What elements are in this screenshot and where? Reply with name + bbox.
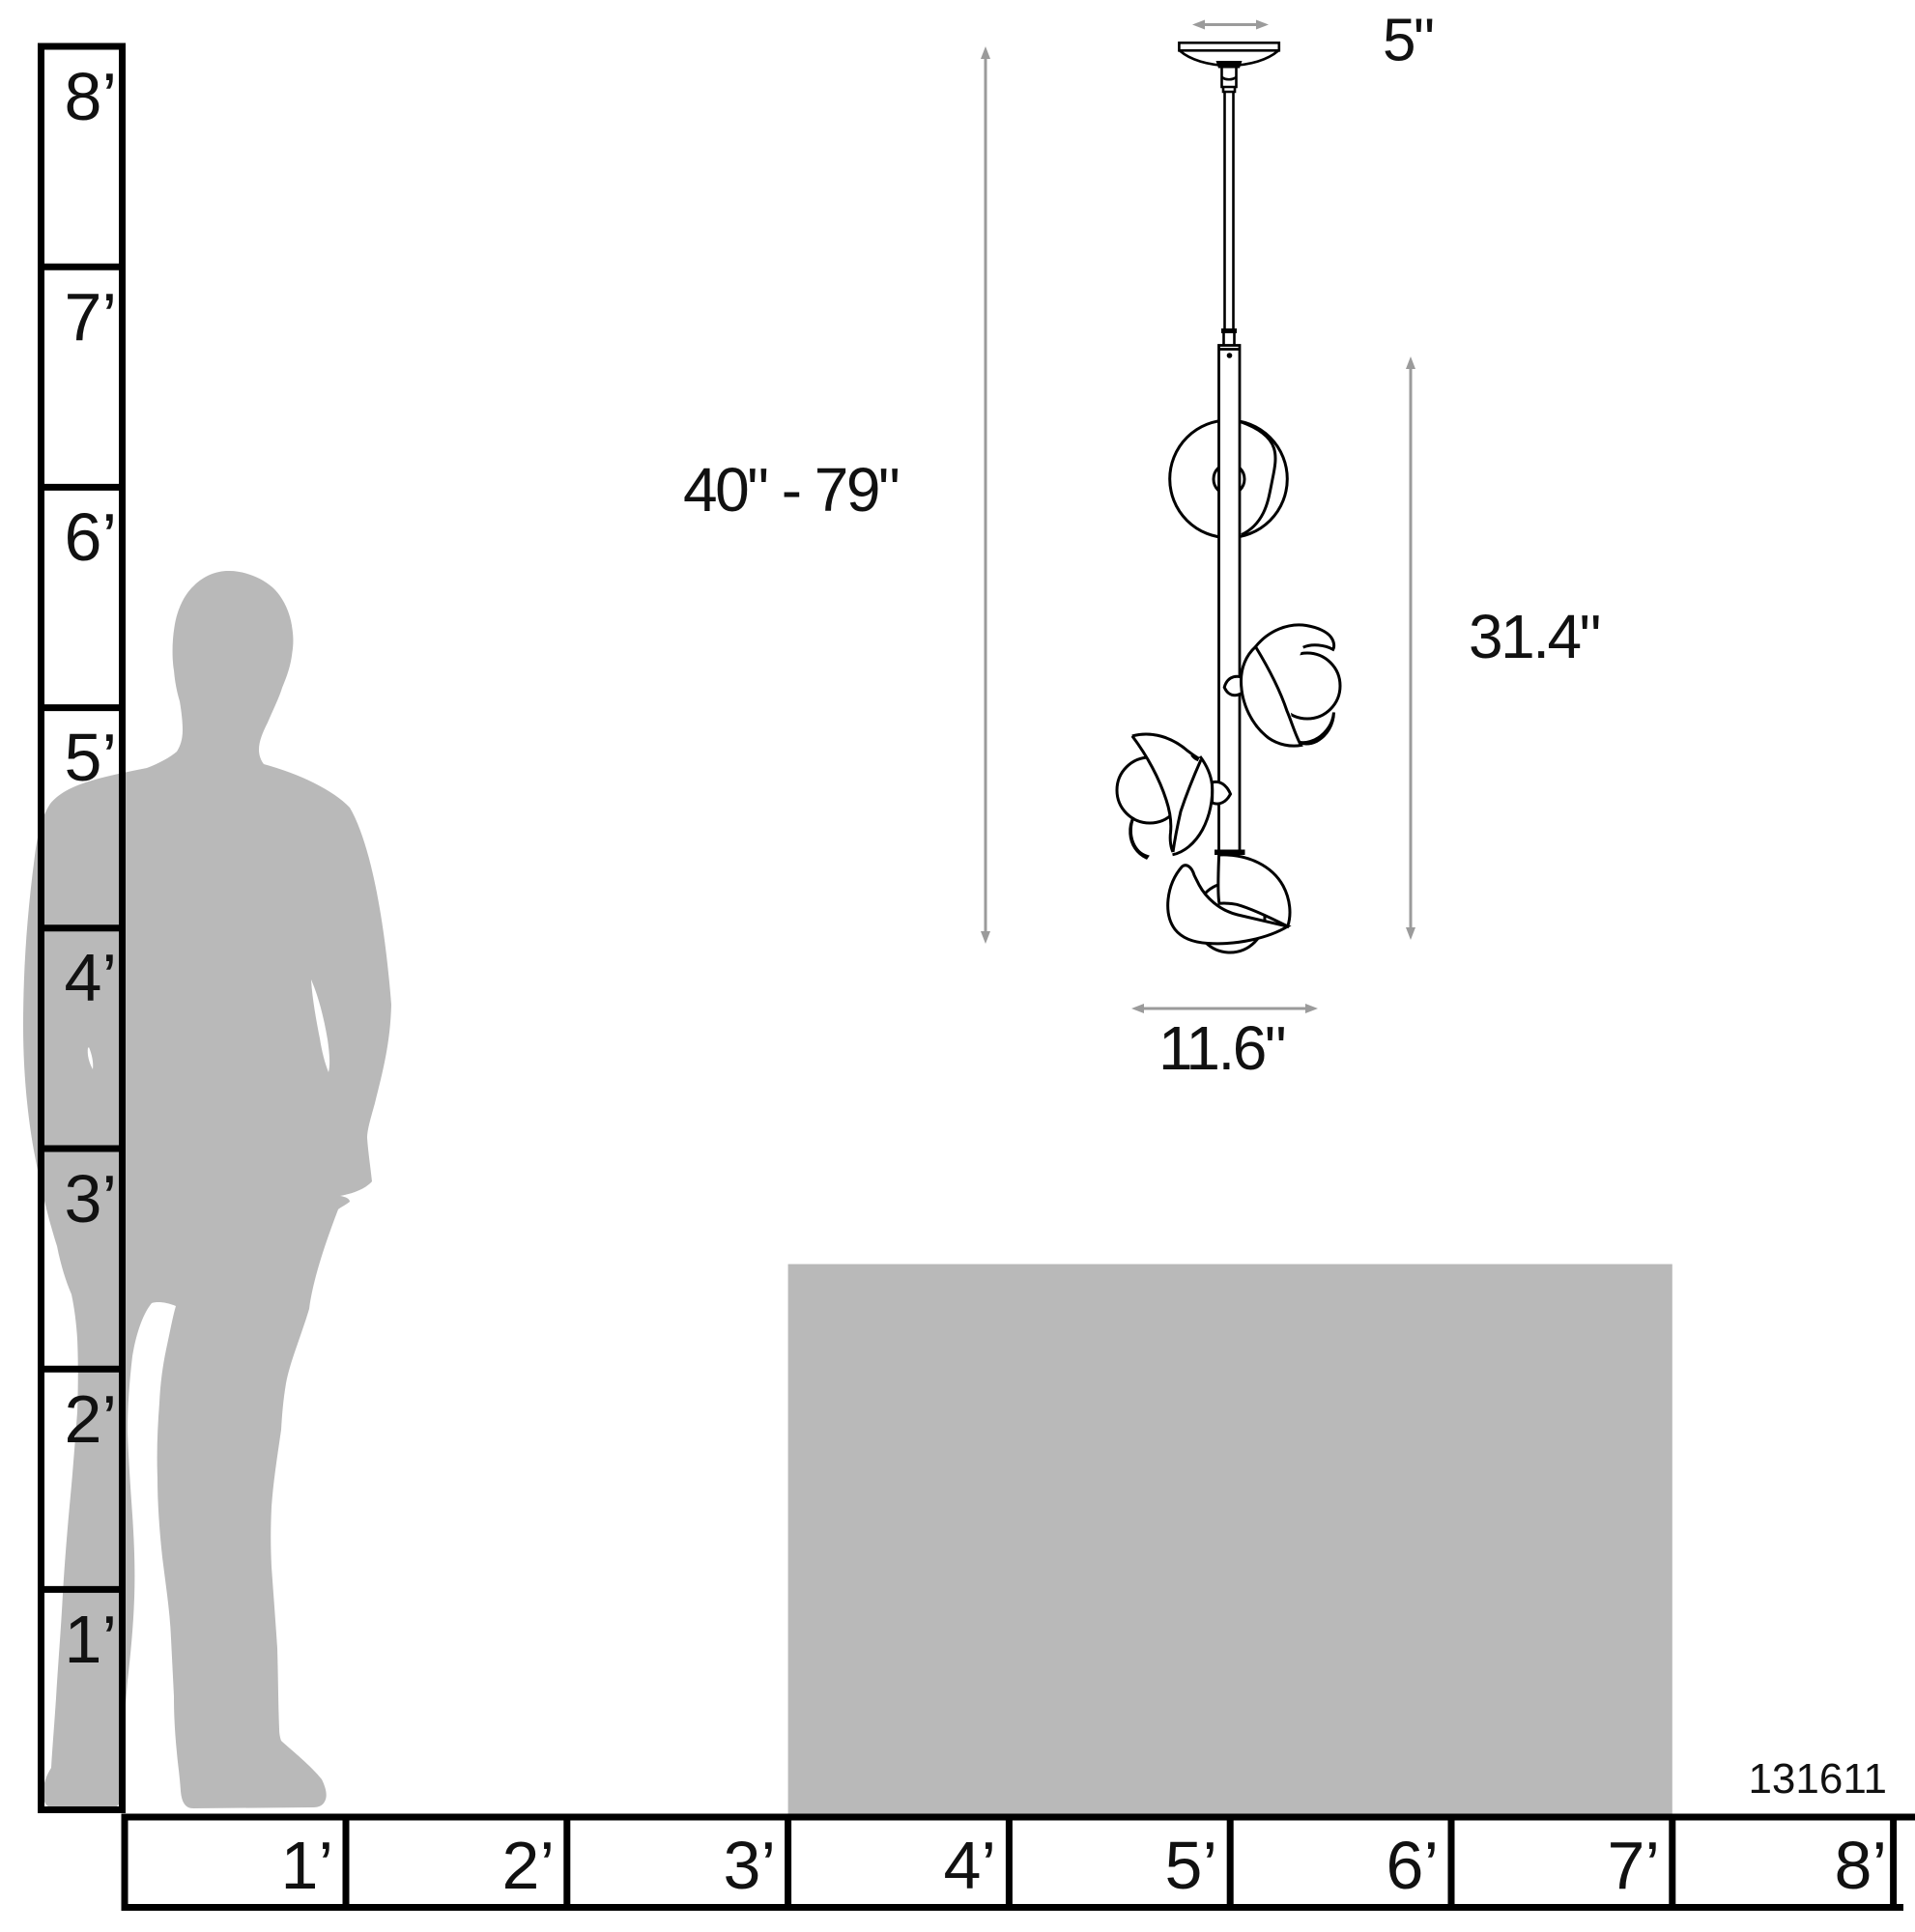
svg-text:5": 5" — [1383, 8, 1433, 74]
svg-text:1’: 1’ — [65, 1602, 117, 1677]
svg-text:11.6": 11.6" — [1158, 1013, 1284, 1083]
svg-text:8’: 8’ — [65, 59, 117, 134]
svg-text:3’: 3’ — [65, 1161, 117, 1236]
svg-text:40" - 79": 40" - 79" — [683, 455, 898, 525]
svg-text:7’: 7’ — [1608, 1828, 1660, 1903]
svg-text:6’: 6’ — [65, 499, 117, 575]
svg-text:6’: 6’ — [1386, 1828, 1439, 1903]
svg-text:5’: 5’ — [65, 720, 117, 795]
svg-text:8’: 8’ — [1835, 1828, 1887, 1903]
svg-text:2’: 2’ — [502, 1828, 555, 1903]
svg-text:4’: 4’ — [65, 940, 117, 1015]
svg-text:7’: 7’ — [65, 279, 117, 355]
svg-text:4’: 4’ — [944, 1828, 996, 1903]
svg-text:3’: 3’ — [724, 1828, 776, 1903]
svg-text:5’: 5’ — [1165, 1828, 1217, 1903]
svg-text:2’: 2’ — [65, 1381, 117, 1457]
svg-text:1’: 1’ — [281, 1828, 333, 1903]
svg-text:31.4": 31.4" — [1469, 602, 1599, 671]
svg-text:131611: 131611 — [1748, 1755, 1887, 1803]
